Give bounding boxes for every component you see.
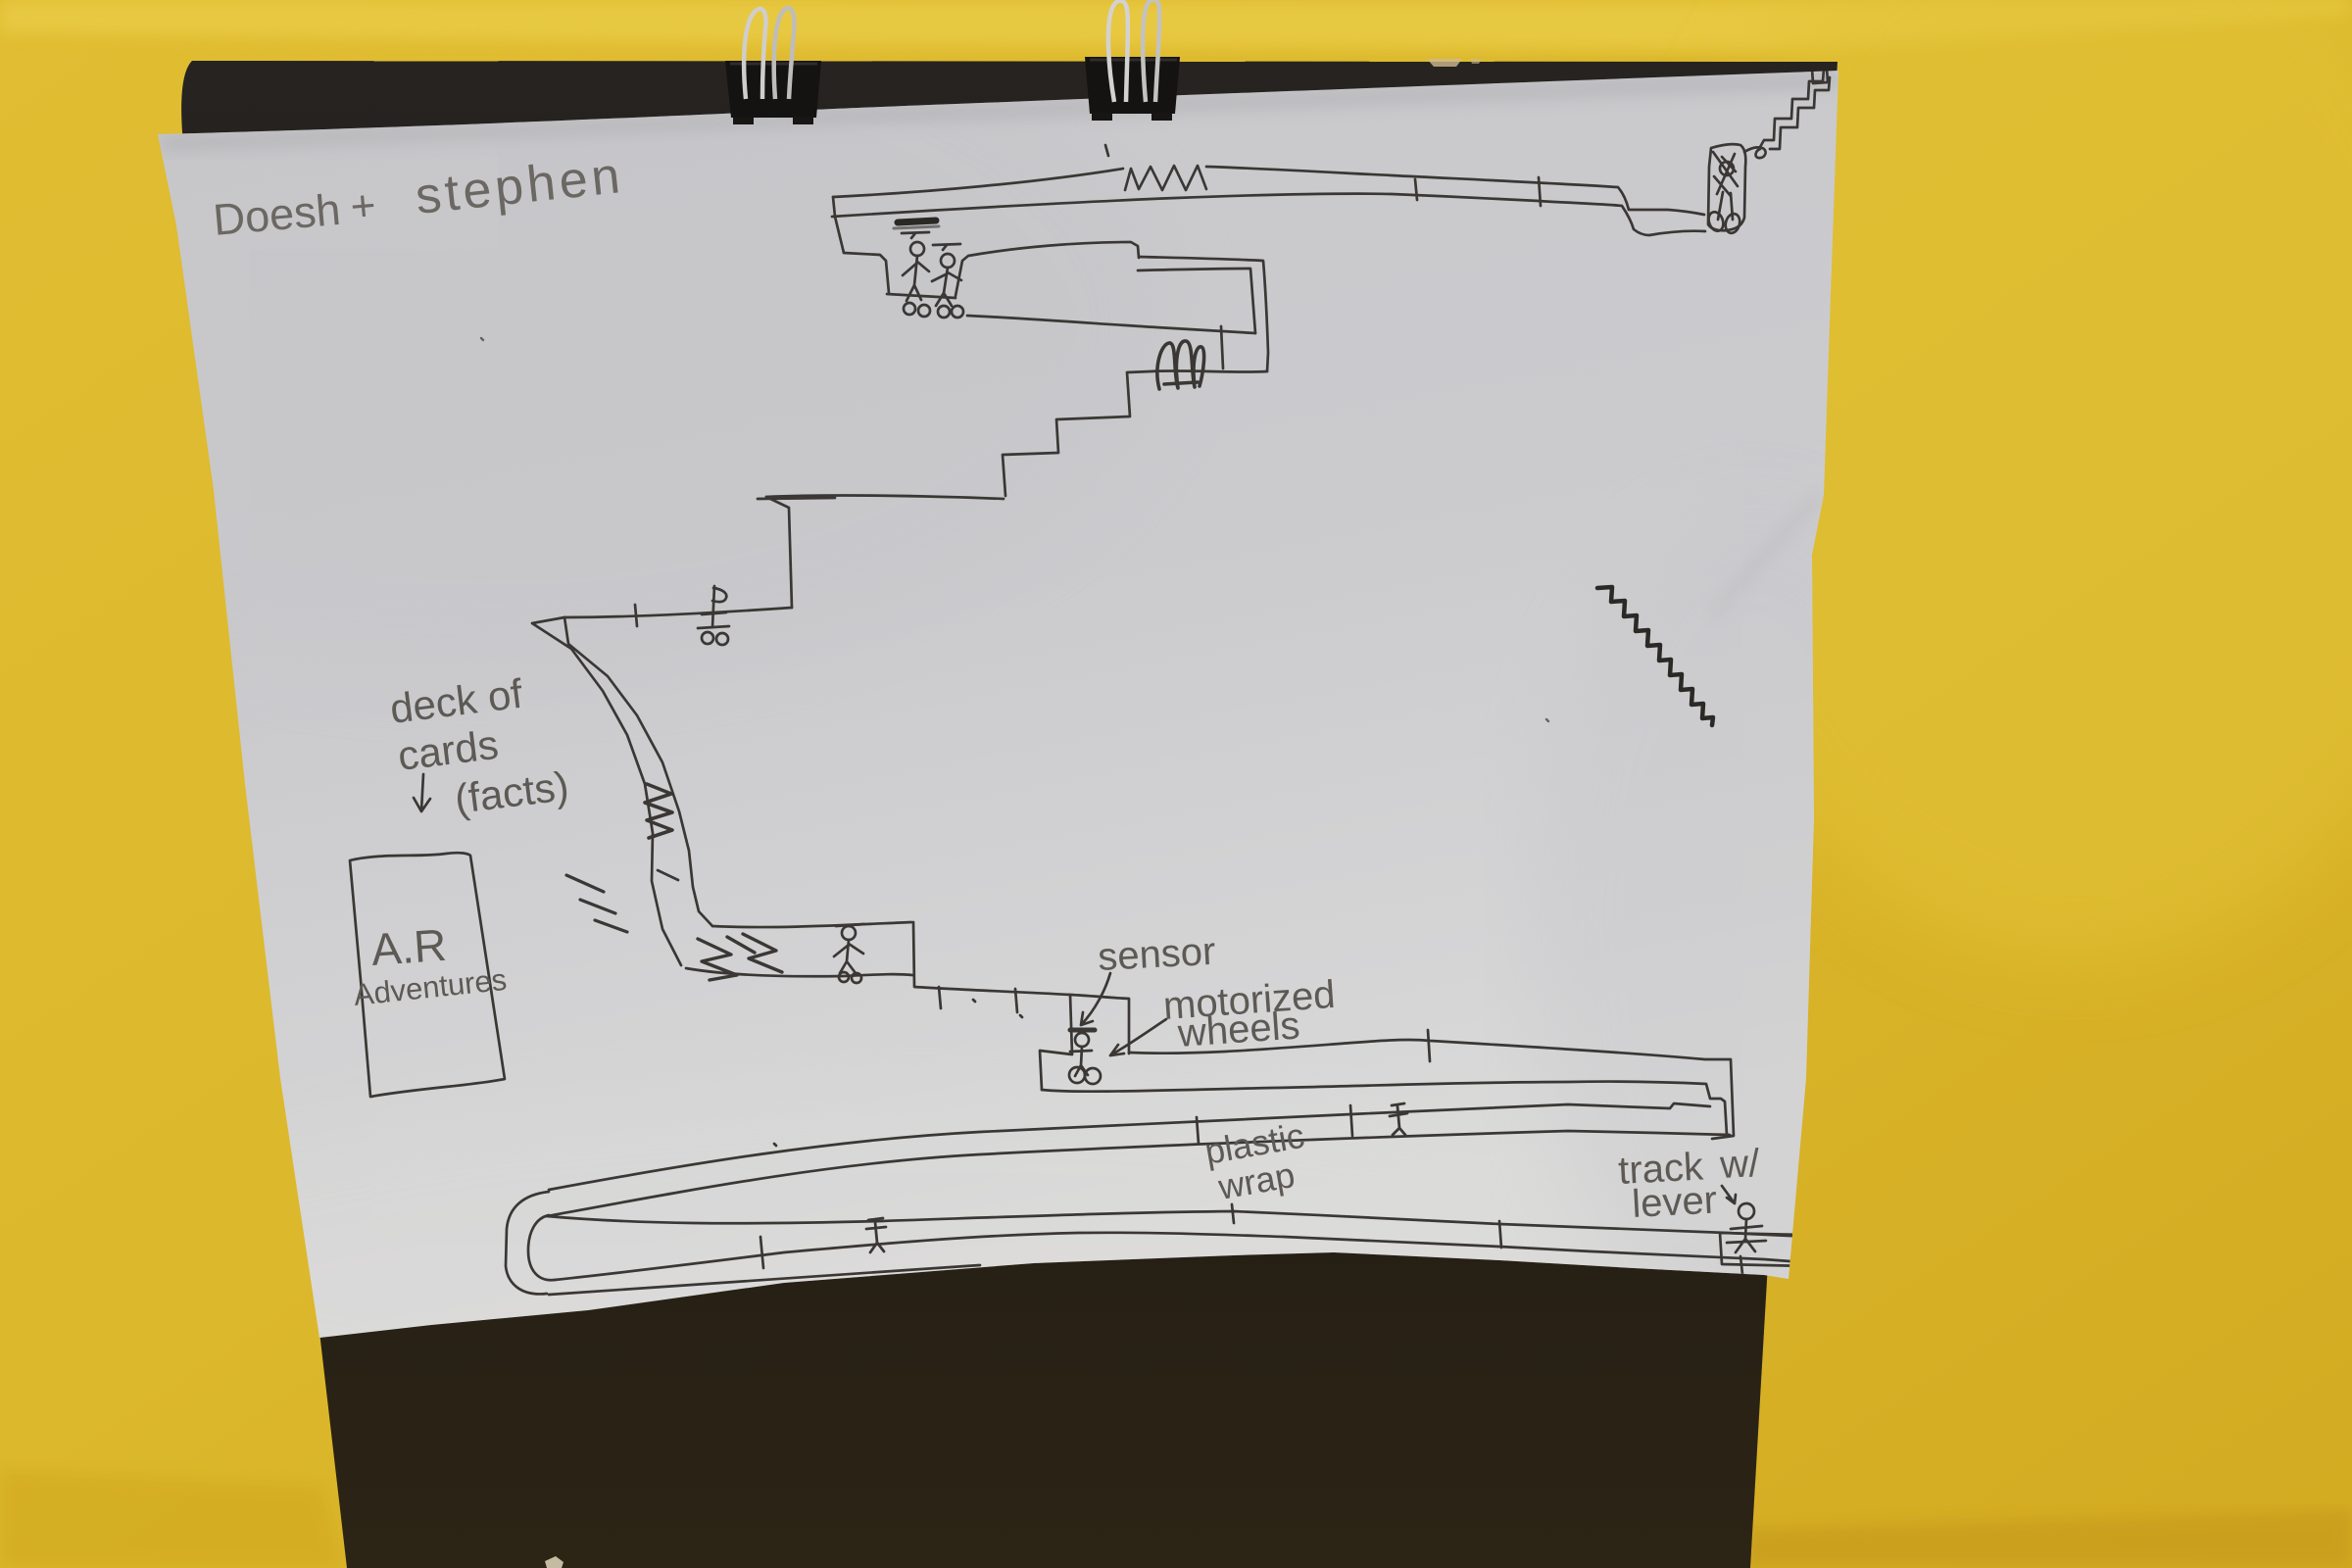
- svg-text:lever: lever: [1631, 1179, 1718, 1226]
- svg-text:wheels: wheels: [1176, 1004, 1301, 1055]
- svg-text:+: +: [349, 181, 378, 231]
- svg-text:w/: w/: [1718, 1142, 1761, 1187]
- svg-text:A.R: A.R: [369, 919, 448, 975]
- svg-text:sensor: sensor: [1097, 930, 1216, 979]
